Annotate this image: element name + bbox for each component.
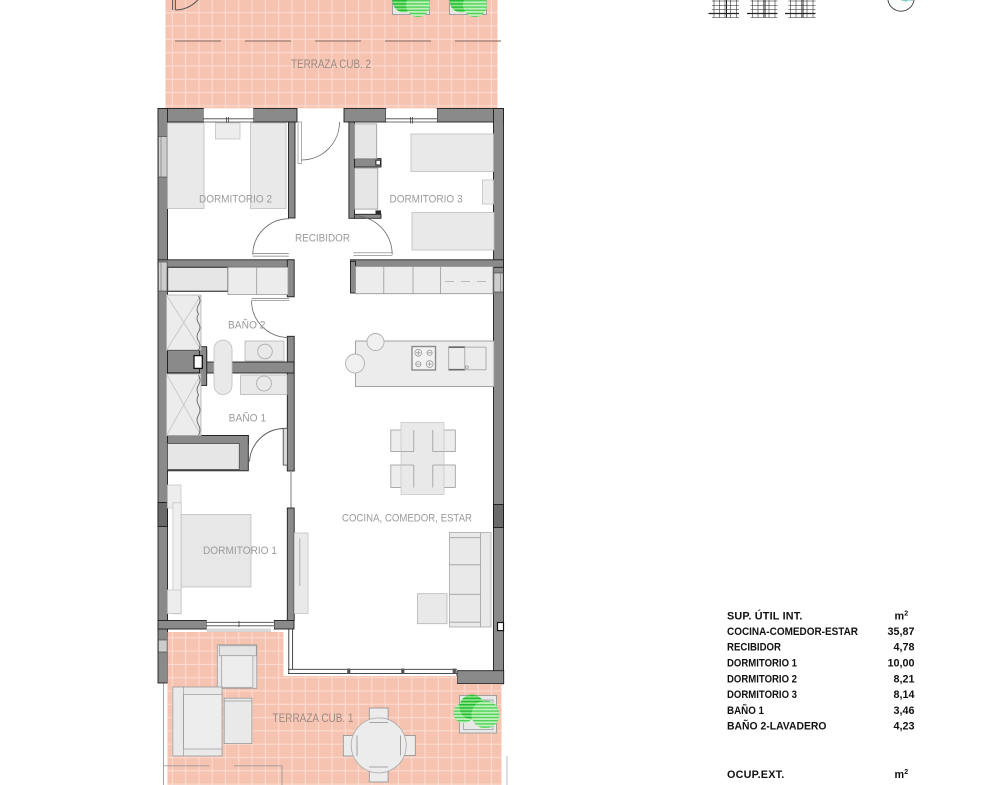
svg-text:RECIBIDOR: RECIBIDOR <box>295 233 350 245</box>
svg-text:DORMITORIO 1: DORMITORIO 1 <box>203 545 277 557</box>
svg-text:RECIBIDOR: RECIBIDOR <box>727 642 781 654</box>
svg-text:DORMITORIO 1: DORMITORIO 1 <box>727 658 797 670</box>
svg-text:2: 2 <box>904 769 908 776</box>
svg-text:BAÑO 2-LAVADERO: BAÑO 2-LAVADERO <box>727 720 827 733</box>
svg-text:BAÑO 1: BAÑO 1 <box>727 704 764 717</box>
svg-text:8,21: 8,21 <box>893 673 914 685</box>
svg-text:TERRAZA CUB. 1: TERRAZA CUB. 1 <box>273 711 354 725</box>
svg-text:35,87: 35,87 <box>887 626 914 638</box>
svg-text:10,00: 10,00 <box>887 658 914 670</box>
svg-text:DORMITORIO 2: DORMITORIO 2 <box>199 193 272 205</box>
svg-text:3,46: 3,46 <box>893 705 914 717</box>
svg-text:4,78: 4,78 <box>893 642 914 654</box>
svg-text:TERRAZA CUB. 2: TERRAZA CUB. 2 <box>291 57 371 71</box>
svg-text:COCINA, COMEDOR, ESTAR: COCINA, COMEDOR, ESTAR <box>342 512 472 524</box>
svg-text:DORMITORIO 2: DORMITORIO 2 <box>727 673 797 685</box>
svg-text:DORMITORIO 3: DORMITORIO 3 <box>390 193 463 205</box>
svg-text:BAÑO 1: BAÑO 1 <box>229 411 267 424</box>
svg-text:SUP. ÚTIL INT.: SUP. ÚTIL INT. <box>727 609 803 622</box>
svg-text:2: 2 <box>904 610 908 617</box>
svg-text:8,14: 8,14 <box>893 689 914 701</box>
svg-text:m: m <box>895 769 905 781</box>
svg-text:COCINA-COMEDOR-ESTAR: COCINA-COMEDOR-ESTAR <box>727 626 858 638</box>
svg-text:m: m <box>895 610 905 622</box>
svg-text:OCUP.EXT.: OCUP.EXT. <box>727 769 784 781</box>
svg-text:BAÑO 2: BAÑO 2 <box>228 319 266 332</box>
svg-text:4,23: 4,23 <box>893 721 914 733</box>
svg-text:DORMITORIO 3: DORMITORIO 3 <box>727 689 797 701</box>
